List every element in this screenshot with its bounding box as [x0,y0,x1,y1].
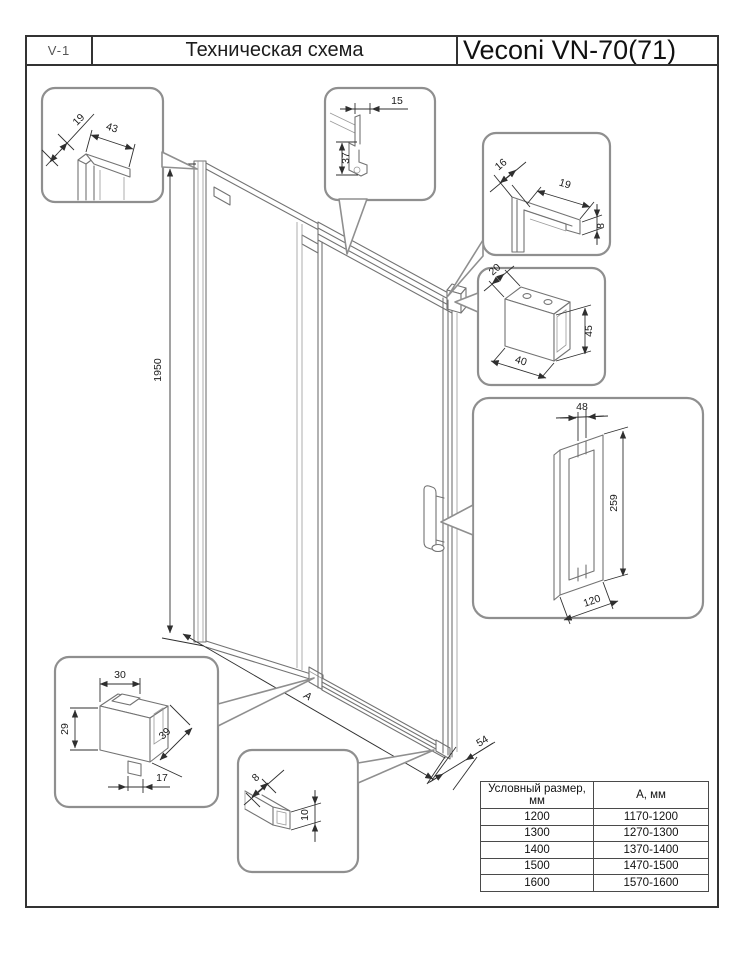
dim-label: 8 [595,223,607,229]
technical-sheet: V-1 Техническая схема Veconi VN-70(71) [0,0,750,970]
table-row: 1500 1470-1500 [481,858,709,875]
callout-bottom-guide: 8 10 [238,750,434,872]
callout-wall-profile: 19 43 [42,88,197,202]
dim-label: 37 [340,152,352,164]
size-table-header-row: Условный размер, мм А, мм [481,782,709,809]
dim-label: 10 [299,809,311,821]
door-handle [424,486,444,552]
table-row: 1200 1170-1200 [481,809,709,826]
table-cell: 1300 [481,825,594,842]
table-cell: 1400 [481,842,594,859]
top-rail [318,222,452,313]
table-row: 1300 1270-1300 [481,825,709,842]
dim-label: 30 [114,669,126,681]
callout-handle: 48 259 120 [441,398,703,624]
wall-profile [194,161,206,642]
dim-label: 45 [583,325,595,337]
table-cell: 1270-1300 [594,825,709,842]
glass-clamp [214,187,230,205]
table-row: 1400 1370-1400 [481,842,709,859]
dim-label: 259 [608,494,620,512]
callout-wall-bracket: 20 45 40 [455,261,605,385]
size-table: Условный размер, мм А, мм 1200 1170-1200… [480,781,709,892]
dim-label: 15 [391,95,403,107]
dim-label-height: 1950 [152,358,164,382]
table-cell: 1500 [481,858,594,875]
callout-top-rail: 15 37 [325,88,435,254]
dim-label-offset: 54 [474,733,490,749]
table-cell: 1170-1200 [594,809,709,826]
size-table-header: Условный размер, мм [481,782,594,809]
dim-label: 17 [156,772,168,784]
callout-pointer [162,152,197,169]
glass-clamp [302,235,318,253]
table-cell: 1200 [481,809,594,826]
dim-label: 48 [576,401,588,413]
table-cell: 1570-1600 [594,875,709,892]
bottom-track [309,667,450,759]
table-row: 1600 1570-1600 [481,875,709,892]
callout-pointer [358,750,434,783]
table-cell: 1370-1400 [594,842,709,859]
size-table-header: А, мм [594,782,709,809]
table-cell: 1600 [481,875,594,892]
dim-label-width: А [301,689,314,703]
fixed-panel [206,222,313,680]
dim-label: 29 [59,723,71,735]
table-cell: 1470-1500 [594,858,709,875]
